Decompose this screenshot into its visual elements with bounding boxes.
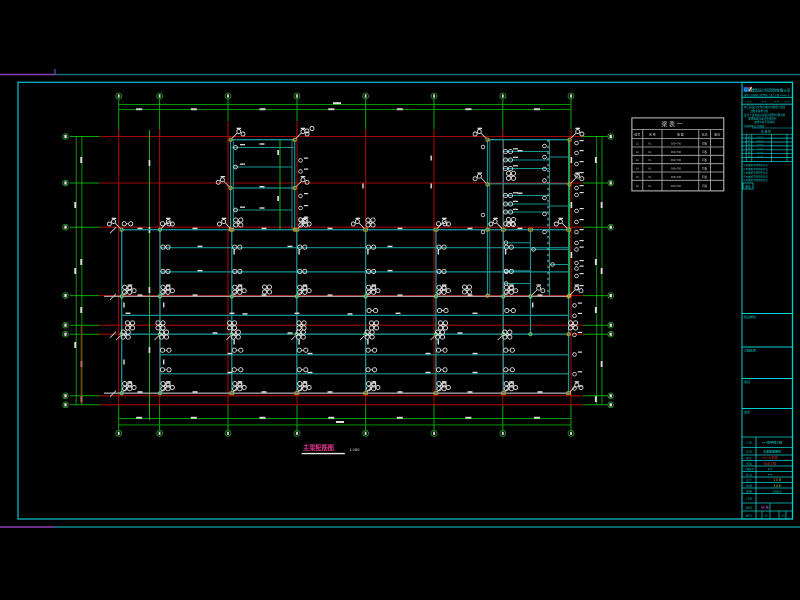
- svg-text:＊＊: ＊＊: [746, 100, 752, 103]
- svg-text:工种负责: 工种负责: [744, 467, 754, 471]
- svg-text:3.本图纸不得用于其它: 3.本图纸不得用于其它: [744, 171, 769, 175]
- svg-text:描 图: 描 图: [746, 489, 752, 493]
- svg-text:备注: 备注: [745, 185, 751, 189]
- svg-text:建设单位: 建设单位: [744, 314, 756, 319]
- svg-text:KL: KL: [648, 175, 652, 179]
- svg-text:工程名称: 工程名称: [744, 348, 756, 353]
- svg-text:300×700: 300×700: [671, 167, 682, 171]
- svg-text:KL: KL: [648, 184, 652, 188]
- svg-text:1 1 5: 1 1 5: [773, 478, 781, 482]
- svg-text:＊＊: ＊＊: [784, 100, 790, 103]
- svg-text:主梁配筋图: 主梁配筋图: [303, 443, 334, 452]
- svg-text:会签: 会签: [744, 409, 750, 414]
- svg-text:本图版权归设计单位所有: 本图版权归设计单位所有: [748, 117, 777, 121]
- svg-text:2 0 5: 2 0 5: [773, 484, 780, 488]
- svg-text:×××××: ×××××: [757, 151, 764, 154]
- svg-text:日 期: 日 期: [746, 497, 752, 501]
- svg-text:KL: KL: [648, 142, 652, 146]
- svg-text:制 图: 制 图: [746, 484, 752, 488]
- svg-text:注 册 师: 注 册 师: [761, 130, 771, 134]
- svg-text:5.本图纸不得用于其它: 5.本图纸不得用于其它: [744, 178, 769, 182]
- svg-text:审 定: 审 定: [746, 456, 752, 460]
- svg-text:图 别: 图 别: [746, 505, 752, 509]
- svg-text:名 称: 名 称: [746, 450, 752, 454]
- svg-text:KL: KL: [648, 150, 652, 154]
- svg-text:×××教学楼工程: ×××教学楼工程: [762, 440, 782, 445]
- svg-text:KL: KL: [648, 158, 652, 162]
- svg-text:梁 表 一: 梁 表 一: [661, 121, 682, 129]
- svg-text:×××大学城: ×××大学城: [762, 455, 778, 460]
- svg-text:出图专用章为准: 出图专用章为准: [750, 109, 769, 113]
- svg-text:同板: 同板: [702, 158, 708, 162]
- svg-text:审 核: 审 核: [746, 462, 752, 466]
- svg-text:300×700: 300×700: [671, 142, 682, 146]
- svg-text:主梁配筋图纸: 主梁配筋图纸: [763, 448, 781, 453]
- svg-text:同板: 同板: [702, 142, 708, 146]
- svg-text:同板: 同板: [702, 184, 708, 188]
- svg-text:1.本图纸不得用于其它: 1.本图纸不得用于其它: [744, 163, 769, 167]
- svg-text:某某建筑设计研究院有限公司: 某某建筑设计研究院有限公司: [744, 87, 791, 92]
- svg-text:设 计: 设 计: [746, 478, 752, 482]
- svg-text:2005.6: 2005.6: [772, 489, 782, 493]
- svg-text:未经许可不得复制: 未经许可不得复制: [754, 120, 775, 124]
- svg-text:备注: 备注: [714, 132, 720, 137]
- svg-text:×××: ×××: [768, 467, 773, 471]
- svg-text:截 面: 截 面: [677, 132, 684, 137]
- svg-text:名 称: 名 称: [649, 132, 656, 137]
- svg-text:＊＊: ＊＊: [774, 100, 780, 103]
- svg-text:同板: 同板: [702, 175, 708, 179]
- svg-text:×××××: ×××××: [757, 143, 764, 146]
- svg-text:×××: ×××: [768, 473, 773, 477]
- svg-text:300×700: 300×700: [671, 184, 682, 188]
- svg-text:注册师执业专用章:: 注册师执业专用章:: [744, 124, 765, 128]
- svg-text:同板: 同板: [702, 150, 708, 154]
- svg-text:KL: KL: [648, 167, 652, 171]
- svg-text:4.本图纸不得用于其它: 4.本图纸不得用于其它: [744, 174, 769, 178]
- svg-text:本工程设计文件有效性以图纸上加盖: 本工程设计文件有效性以图纸上加盖: [744, 105, 786, 109]
- svg-text:×××××: ×××××: [757, 147, 764, 150]
- svg-text:300×700: 300×700: [671, 175, 682, 179]
- svg-text:结 施: 结 施: [761, 505, 769, 510]
- svg-text:图 号: 图 号: [746, 513, 752, 517]
- svg-text:建设工程: 建设工程: [764, 461, 776, 466]
- svg-text:1:150: 1:150: [350, 447, 361, 452]
- svg-text:×××××: ×××××: [757, 155, 764, 158]
- svg-text:校 对: 校 对: [746, 473, 752, 477]
- svg-text:12: 12: [764, 513, 768, 517]
- svg-text:同板: 同板: [702, 167, 708, 171]
- svg-text:＊＊: ＊＊: [761, 100, 767, 103]
- svg-text:设计人员资格以加盖注册师印章为准: 设计人员资格以加盖注册师印章为准: [744, 113, 786, 117]
- svg-text:项目: 项目: [744, 380, 750, 384]
- svg-text:×××××: ×××××: [757, 139, 764, 142]
- svg-text:标高: 标高: [702, 132, 708, 137]
- svg-text:工 程: 工 程: [746, 441, 752, 445]
- svg-text:2.本图纸不得用于其它: 2.本图纸不得用于其它: [744, 167, 769, 171]
- svg-text:300×700: 300×700: [671, 158, 682, 162]
- svg-text:编号: 编号: [634, 132, 640, 137]
- svg-text:300×700: 300×700: [671, 150, 682, 154]
- svg-text:1/2: 1/2: [781, 513, 785, 517]
- svg-text:×××××: ×××××: [757, 135, 764, 138]
